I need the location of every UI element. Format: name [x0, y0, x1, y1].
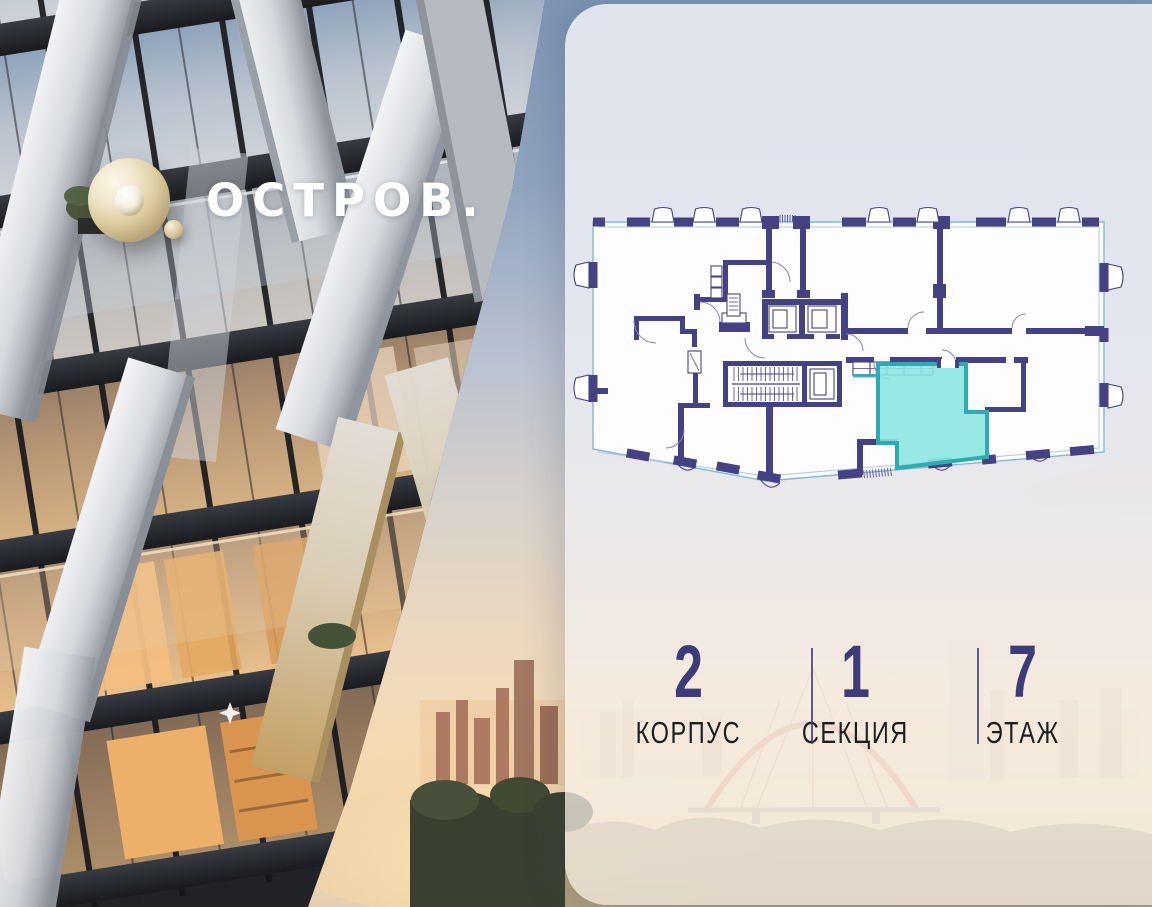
ostrov-logo: ОСТРОВ. [88, 156, 487, 248]
floor-plan [565, 196, 1152, 506]
ostrov-o-icon [88, 156, 188, 248]
stat-etazh-label: ЭТАЖ [985, 715, 1059, 751]
logo-ring-hole [115, 185, 144, 216]
plan-outline [593, 222, 1104, 481]
floor-plan-svg [565, 196, 1152, 506]
stat-sekcia-value: 1 [797, 638, 914, 706]
stat-korpus-label: КОРПУС [636, 715, 742, 751]
logo-dot [164, 220, 183, 239]
stat-korpus-value: 2 [630, 638, 747, 706]
info-panel: 2 КОРПУС 1 СЕКЦИЯ 7 ЭТАЖ [565, 4, 1152, 905]
stat-etazh: 7 ЭТАЖ [939, 638, 1106, 754]
logo-text: ОСТРОВ. [206, 174, 487, 231]
stats-divider [977, 648, 979, 744]
stat-korpus: 2 КОРПУС [605, 638, 772, 754]
stat-sekcia-label: СЕКЦИЯ [802, 715, 909, 751]
stat-etazh-value: 7 [964, 638, 1081, 706]
page: ОСТРОВ. [0, 0, 1152, 907]
stat-sekcia: 1 СЕКЦИЯ [772, 638, 939, 754]
stats-divider [811, 648, 813, 744]
apartment-stats: 2 КОРПУС 1 СЕКЦИЯ 7 ЭТАЖ [605, 638, 1106, 754]
